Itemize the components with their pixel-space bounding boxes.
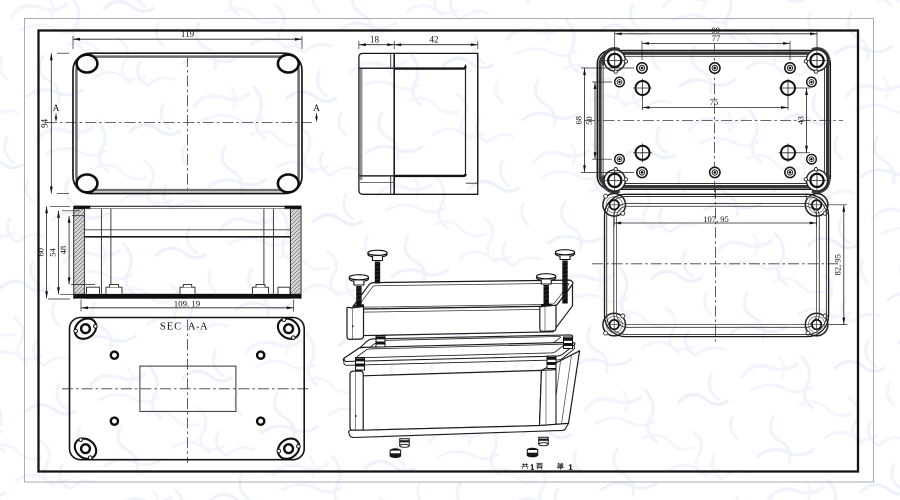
svg-text:1: 1 bbox=[530, 462, 534, 471]
svg-text:42: 42 bbox=[430, 34, 439, 44]
svg-text:43: 43 bbox=[795, 116, 805, 125]
svg-text:18: 18 bbox=[370, 34, 380, 44]
svg-text:82, 95: 82, 95 bbox=[833, 254, 843, 275]
svg-text:107, 95: 107, 95 bbox=[703, 214, 729, 224]
svg-text:A: A bbox=[313, 104, 320, 114]
svg-text:75: 75 bbox=[710, 97, 719, 107]
svg-text:68: 68 bbox=[573, 116, 583, 125]
svg-text:A-A: A-A bbox=[188, 322, 208, 333]
svg-text:A: A bbox=[53, 104, 60, 114]
svg-text:94: 94 bbox=[39, 118, 49, 128]
svg-text:50: 50 bbox=[584, 116, 594, 125]
svg-text:SEC: SEC bbox=[160, 322, 182, 333]
svg-text:48: 48 bbox=[58, 246, 68, 255]
svg-text:77: 77 bbox=[712, 33, 721, 43]
svg-text:109. 19: 109. 19 bbox=[174, 298, 201, 308]
svg-text:119: 119 bbox=[181, 29, 195, 39]
svg-text:60: 60 bbox=[35, 248, 45, 257]
svg-text:1: 1 bbox=[569, 462, 573, 471]
svg-text:54: 54 bbox=[47, 248, 57, 257]
